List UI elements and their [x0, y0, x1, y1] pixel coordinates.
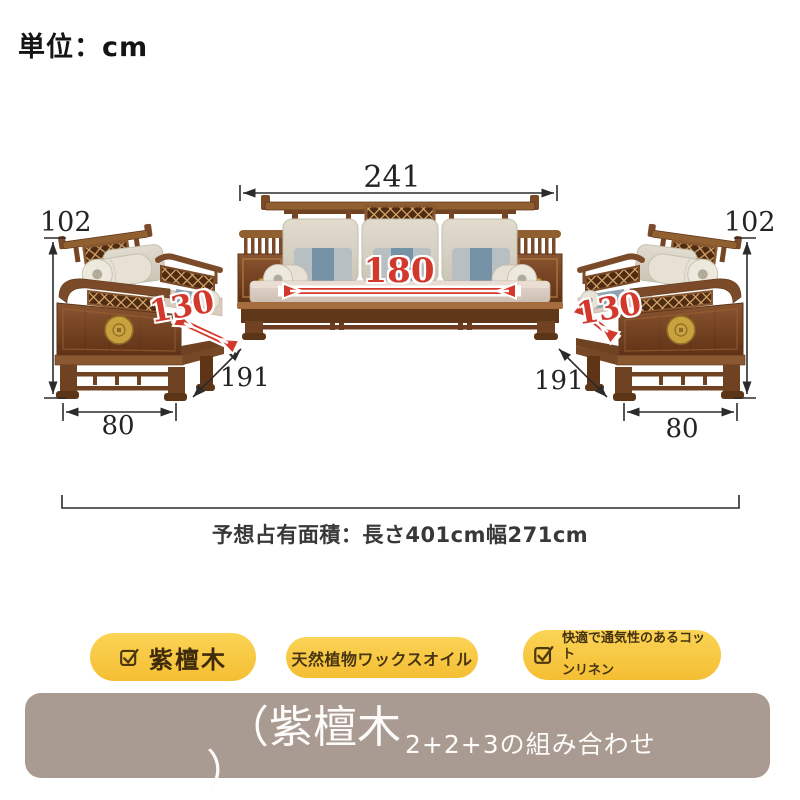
badge-rosewood: 紫檀木 [90, 633, 256, 681]
dim-label-241: 241 [363, 160, 420, 195]
badge-cotton-linen-label: 快適で通気性のあるコット ンリネン [562, 631, 711, 679]
material-name-line1: （紫檀木 [225, 691, 401, 755]
footprint-bracket [62, 495, 739, 508]
badge-cotton-linen: 快適で通気性のあるコット ンリネン [523, 630, 721, 680]
dim-label-180: 180 [364, 251, 435, 291]
material-name-line2: ） [206, 735, 250, 799]
badge-wax-oil: 天然植物ワックスオイル [286, 637, 478, 678]
unit-label: 単位：cm [18, 25, 148, 64]
badge-cotton-linen-line1: 快適で通気性のあるコット [562, 631, 711, 663]
badge-rosewood-label: 紫檀木 [149, 640, 227, 675]
badge-cotton-linen-line2: ンリネン [562, 663, 711, 679]
checkbox-icon [119, 647, 140, 668]
dim-label-102-right: 102 [724, 207, 776, 238]
dim-label-102-left: 102 [40, 207, 92, 238]
dim-label-80-right: 80 [665, 414, 698, 444]
badge-wax-oil-label: 天然植物ワックスオイル [291, 646, 472, 670]
footer-band: （紫檀木 ） 2+2+3の組み合わせ [25, 693, 770, 778]
checkbox-icon [533, 644, 555, 666]
footprint-note: 予想占有面積：長さ401cm幅271cm [0, 519, 800, 549]
combination-label: 2+2+3の組み合わせ [405, 725, 656, 761]
dim-label-191-left: 191 [220, 363, 270, 393]
dim-label-80-left: 80 [101, 411, 134, 441]
dim-label-191-right: 191 [534, 366, 584, 396]
product-dimension-diagram: 単位：cm 241 180 102 102 130 130 191 191 80… [0, 0, 800, 800]
